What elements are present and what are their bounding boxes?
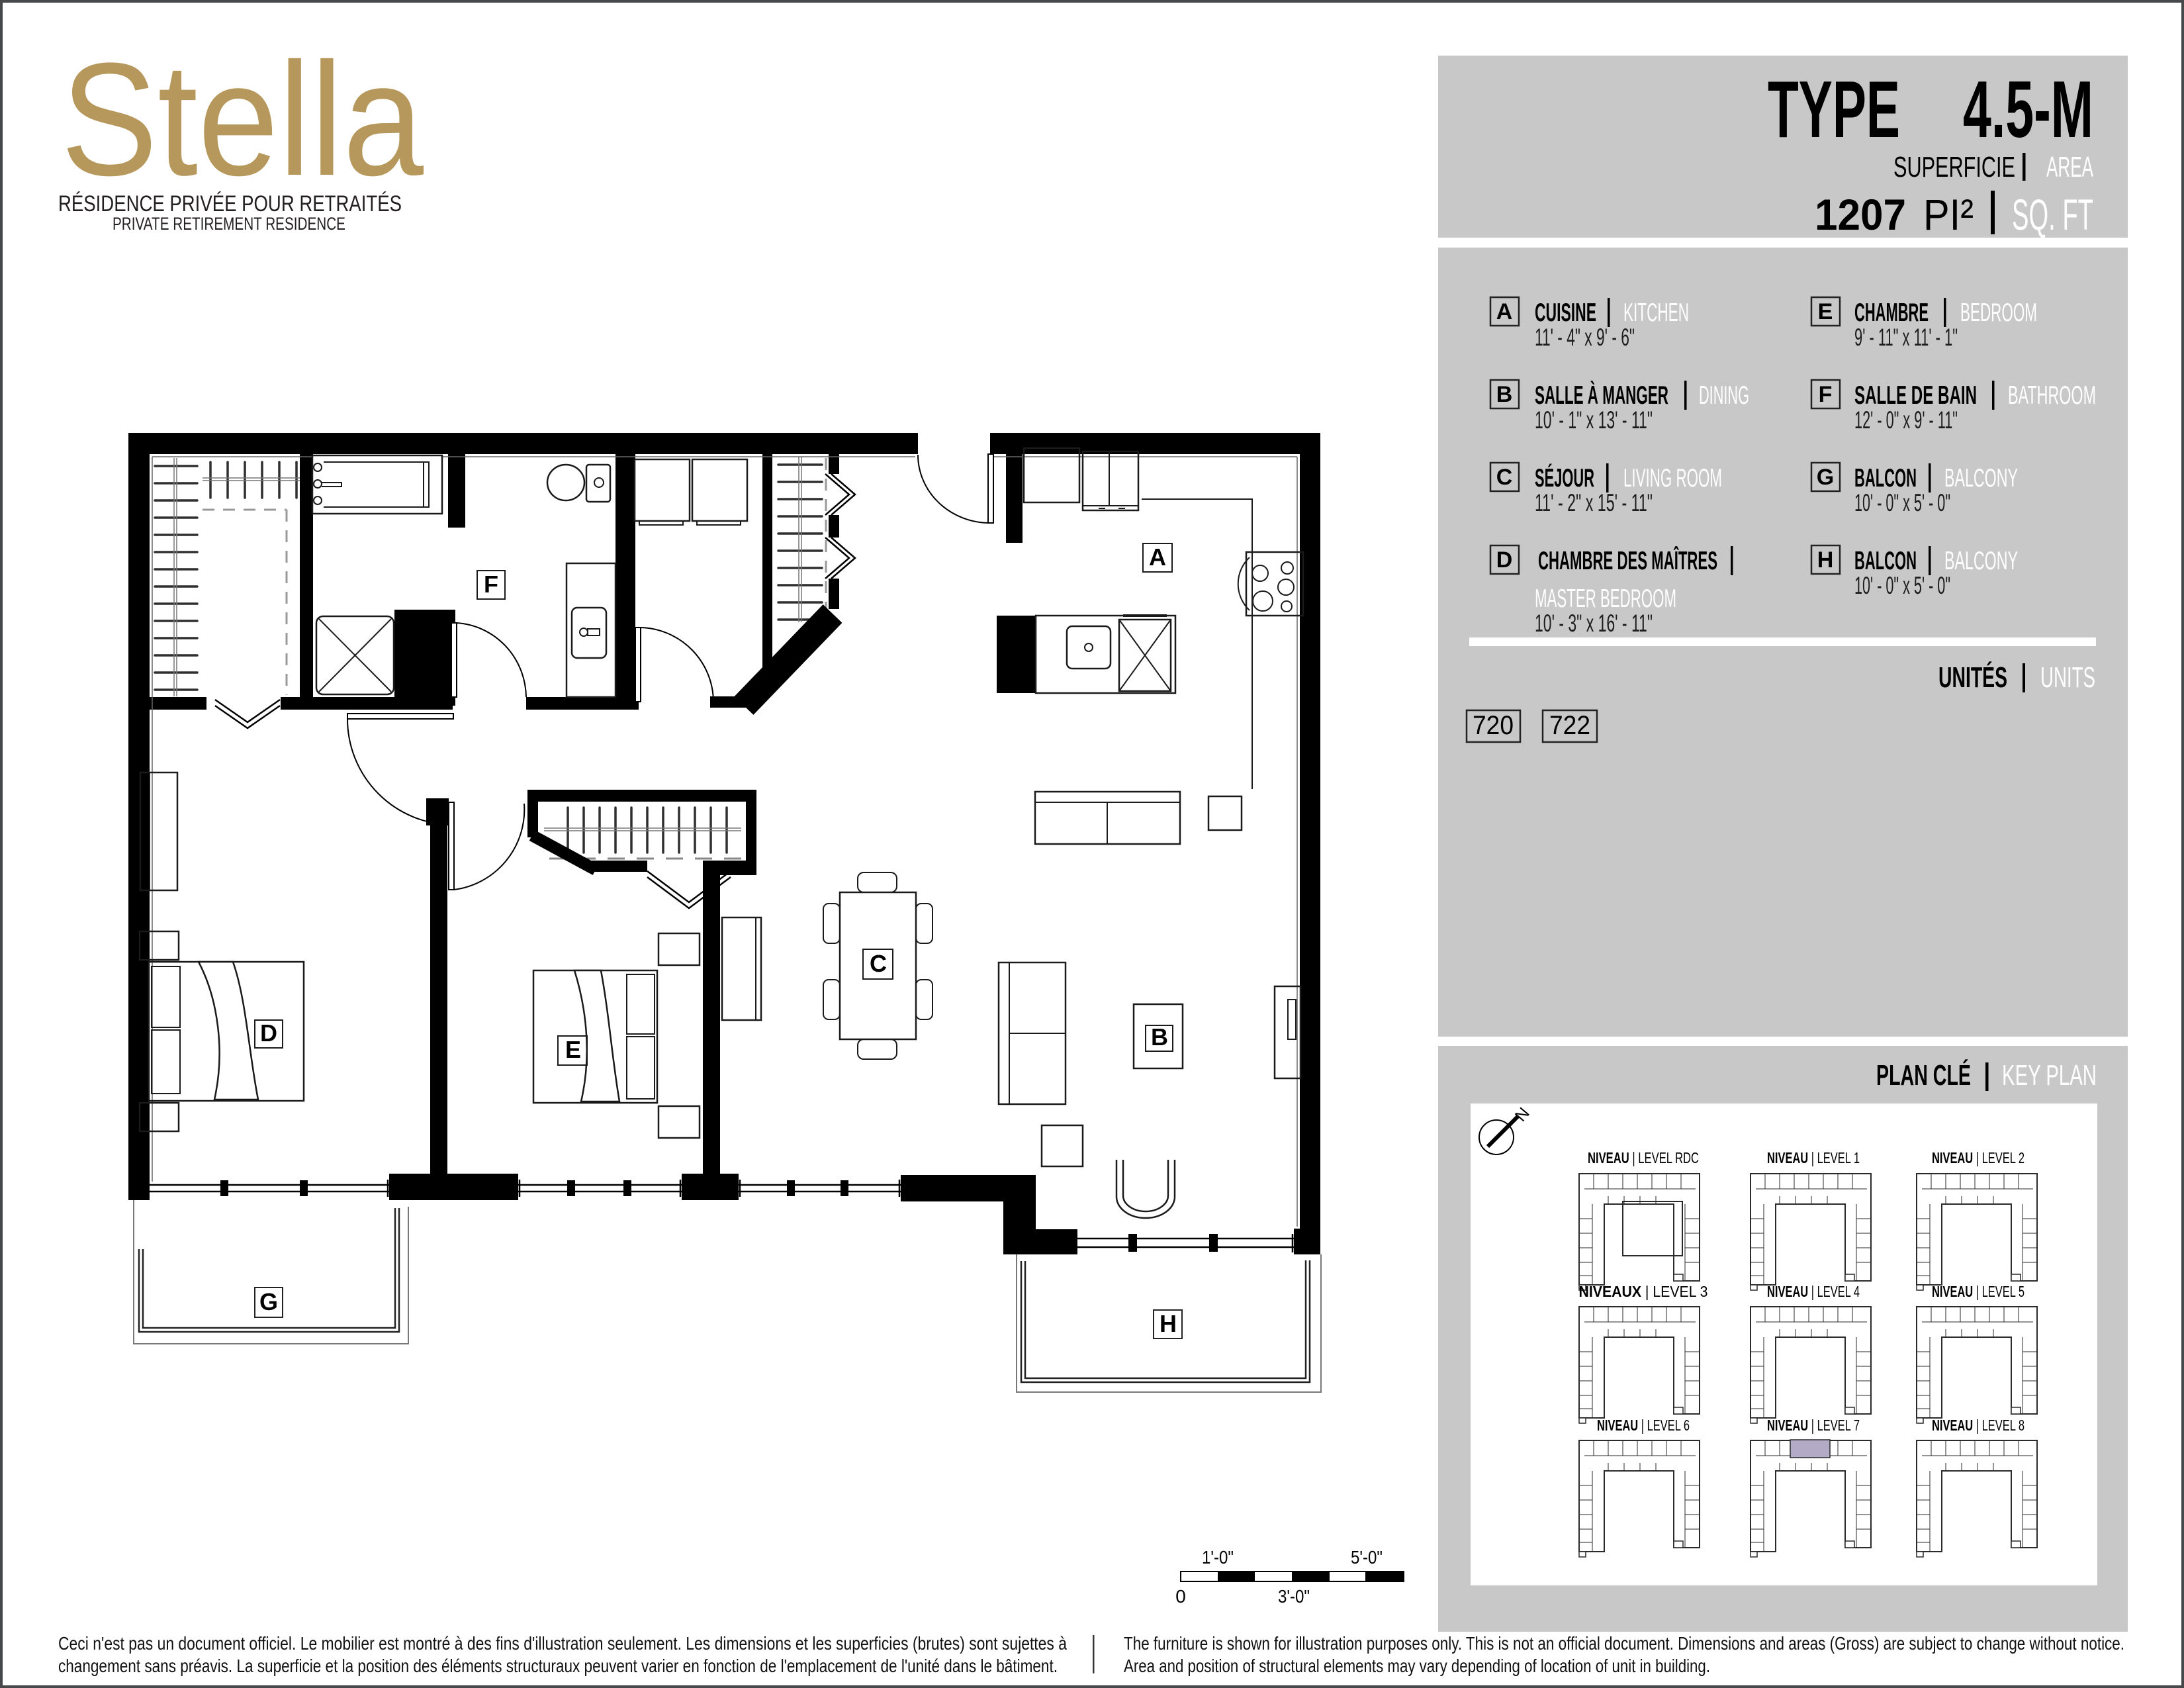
svg-text:KITCHEN: KITCHEN — [1623, 299, 1689, 327]
svg-text:10' - 0" x 5' - 0": 10' - 0" x 5' - 0" — [1854, 489, 1950, 516]
svg-text:SÉJOUR: SÉJOUR — [1535, 463, 1594, 492]
svg-text:NIVEAUX | LEVEL 3: NIVEAUX | LEVEL 3 — [1579, 1283, 1708, 1300]
svg-text:NIVEAU | LEVEL 5: NIVEAU | LEVEL 5 — [1932, 1283, 2025, 1300]
svg-text:G: G — [1817, 465, 1834, 490]
svg-text:Stella: Stella — [61, 30, 424, 209]
svg-text:SQ. FT: SQ. FT — [2012, 190, 2093, 239]
svg-text:SALLE À MANGER: SALLE À MANGER — [1535, 381, 1668, 410]
svg-text:H: H — [1817, 547, 1834, 573]
svg-text:PRIVATE RETIREMENT RESIDENCE: PRIVATE RETIREMENT RESIDENCE — [113, 214, 345, 234]
svg-text:10' - 3" x 16' - 11": 10' - 3" x 16' - 11" — [1535, 610, 1653, 637]
svg-text:B: B — [1496, 382, 1513, 407]
svg-text:4.5-M: 4.5-M — [1963, 64, 2093, 154]
svg-text:A: A — [1149, 543, 1166, 571]
svg-text:LIVING ROOM: LIVING ROOM — [1623, 464, 1722, 492]
svg-text:BALCON: BALCON — [1854, 547, 1917, 575]
svg-text:C: C — [1496, 465, 1513, 490]
svg-text:10' - 1" x 13' - 11": 10' - 1" x 13' - 11" — [1535, 406, 1653, 434]
svg-text:NIVEAU | LEVEL 6: NIVEAU | LEVEL 6 — [1597, 1417, 1690, 1434]
svg-text:BALCON: BALCON — [1854, 464, 1917, 492]
svg-text:changement sans préavis. La su: changement sans préavis. La superficie e… — [58, 1656, 1058, 1676]
svg-text:3'-0": 3'-0" — [1278, 1586, 1310, 1607]
svg-text:11' - 4" x 9' - 6": 11' - 4" x 9' - 6" — [1535, 324, 1635, 351]
svg-text:E: E — [565, 1036, 581, 1063]
svg-text:D: D — [1496, 547, 1513, 573]
svg-text:F: F — [1819, 382, 1833, 407]
svg-text:BALCONY: BALCONY — [1944, 547, 2018, 575]
svg-text:AREA: AREA — [2046, 151, 2093, 183]
svg-text:UNITÉS: UNITÉS — [1938, 661, 2007, 694]
svg-text:F: F — [484, 571, 498, 598]
svg-text:NIVEAU | LEVEL 8: NIVEAU | LEVEL 8 — [1932, 1417, 2025, 1434]
svg-text:1207: 1207 — [1815, 190, 1906, 239]
svg-text:720: 720 — [1473, 711, 1514, 740]
svg-text:The furniture is shown for ill: The furniture is shown for illustration … — [1124, 1633, 2124, 1654]
svg-text:11' - 2" x 15' - 11": 11' - 2" x 15' - 11" — [1535, 489, 1653, 516]
svg-text:NIVEAU | LEVEL 7: NIVEAU | LEVEL 7 — [1767, 1417, 1860, 1434]
svg-text:0: 0 — [1175, 1586, 1186, 1607]
svg-text:Ceci n'est pas un document off: Ceci n'est pas un document officiel. Le … — [58, 1633, 1067, 1654]
svg-text:12' - 0" x 9' - 11": 12' - 0" x 9' - 11" — [1854, 406, 1958, 434]
svg-text:D: D — [260, 1019, 277, 1047]
svg-text:TYPE: TYPE — [1768, 64, 1900, 154]
svg-text:E: E — [1818, 299, 1833, 324]
svg-text:9' - 11" x 11' - 1": 9' - 11" x 11' - 1" — [1854, 324, 1958, 351]
svg-text:MASTER BEDROOM: MASTER BEDROOM — [1535, 585, 1676, 613]
svg-text:DINING: DINING — [1699, 381, 1749, 410]
svg-text:PI²: PI² — [1923, 190, 1974, 239]
svg-text:NIVEAU | LEVEL RDC: NIVEAU | LEVEL RDC — [1588, 1149, 1699, 1166]
svg-text:5'-0": 5'-0" — [1351, 1547, 1383, 1568]
svg-text:SUPERFICIE: SUPERFICIE — [1893, 151, 2015, 183]
svg-text:UNITS: UNITS — [2040, 661, 2095, 694]
svg-text:BEDROOM: BEDROOM — [1960, 299, 2037, 327]
svg-text:RÉSIDENCE PRIVÉE POUR RETRAITÉ: RÉSIDENCE PRIVÉE POUR RETRAITÉS — [58, 191, 402, 216]
svg-text:10' - 0" x 5' - 0": 10' - 0" x 5' - 0" — [1854, 572, 1950, 599]
svg-text:Area and position of structura: Area and position of structural elements… — [1124, 1656, 1710, 1676]
svg-text:BATHROOM: BATHROOM — [2008, 381, 2096, 410]
svg-text:B: B — [1151, 1023, 1168, 1051]
svg-text:A: A — [1496, 299, 1513, 324]
svg-text:KEY PLAN: KEY PLAN — [2002, 1059, 2097, 1092]
svg-text:C: C — [870, 950, 887, 977]
svg-text:NIVEAU | LEVEL 4: NIVEAU | LEVEL 4 — [1767, 1283, 1860, 1300]
svg-text:PLAN CLÉ: PLAN CLÉ — [1876, 1058, 1971, 1092]
svg-text:BALCONY: BALCONY — [1944, 464, 2018, 492]
svg-text:H: H — [1160, 1310, 1177, 1337]
svg-text:CHAMBRE: CHAMBRE — [1854, 299, 1929, 327]
svg-text:CHAMBRE DES MAÎTRES: CHAMBRE DES MAÎTRES — [1538, 546, 1717, 575]
svg-text:G: G — [259, 1288, 278, 1315]
svg-text:722: 722 — [1549, 711, 1590, 740]
svg-text:NIVEAU | LEVEL 1: NIVEAU | LEVEL 1 — [1767, 1149, 1860, 1166]
svg-text:1'-0": 1'-0" — [1202, 1547, 1234, 1568]
svg-text:SALLE DE BAIN: SALLE DE BAIN — [1854, 381, 1977, 410]
svg-text:NIVEAU | LEVEL 2: NIVEAU | LEVEL 2 — [1932, 1149, 2025, 1166]
svg-text:CUISINE: CUISINE — [1535, 299, 1596, 327]
